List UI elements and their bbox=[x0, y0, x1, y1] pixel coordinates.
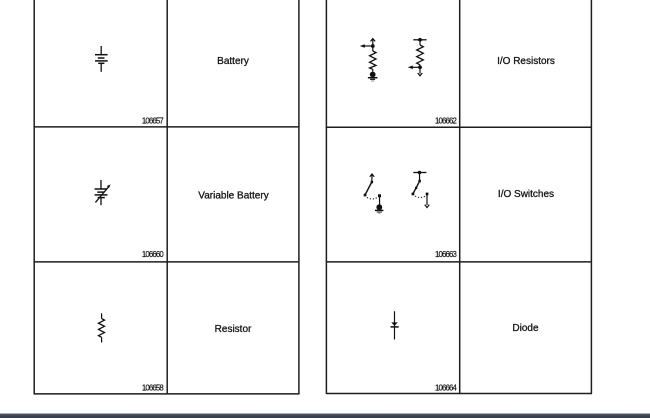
svg-text:106660: 106660 bbox=[142, 250, 164, 259]
svg-text:106662: 106662 bbox=[435, 116, 457, 125]
svg-text:I/O Resistors: I/O Resistors bbox=[497, 56, 555, 67]
svg-text:106664: 106664 bbox=[435, 384, 457, 393]
svg-text:106658: 106658 bbox=[142, 383, 164, 392]
svg-text:Diode: Diode bbox=[512, 323, 539, 334]
svg-text:106657: 106657 bbox=[142, 117, 164, 126]
svg-text:I/O Switches: I/O Switches bbox=[498, 189, 554, 200]
svg-text:106663: 106663 bbox=[435, 250, 457, 259]
svg-text:Variable Battery: Variable Battery bbox=[198, 191, 268, 202]
svg-text:Resistor: Resistor bbox=[215, 324, 252, 335]
svg-text:Battery: Battery bbox=[217, 56, 249, 67]
